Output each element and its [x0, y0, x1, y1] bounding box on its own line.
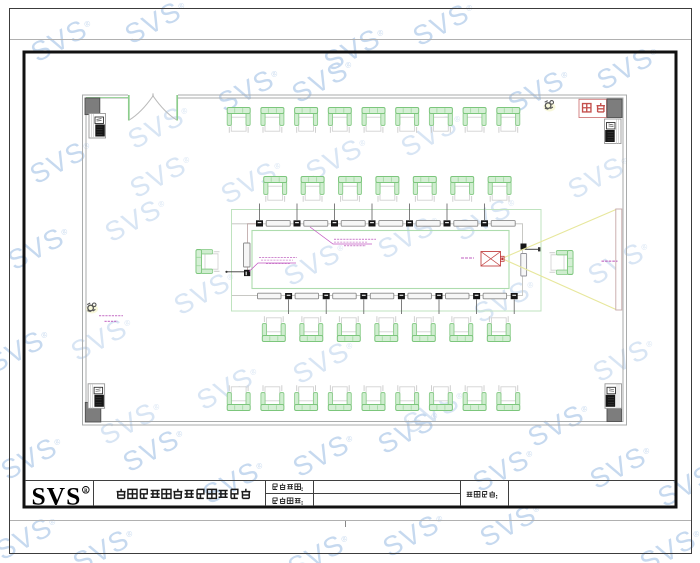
svg-text:R: R	[84, 489, 88, 494]
svg-text:SVS®: SVS®	[562, 146, 636, 205]
svg-text:SVS®: SVS®	[377, 504, 451, 563]
svg-text:SVS®: SVS®	[0, 320, 56, 379]
svg-text:SVS®: SVS®	[282, 524, 356, 563]
svg-text:SVS®: SVS®	[587, 329, 661, 388]
svg-text:SVS®: SVS®	[24, 131, 98, 190]
svg-text:SVS®: SVS®	[119, 0, 193, 50]
svg-text:SVS®: SVS®	[25, 9, 99, 68]
svg-text:SVS®: SVS®	[122, 96, 196, 155]
svg-text:SVS®: SVS®	[634, 519, 700, 563]
svg-text:SVS®: SVS®	[65, 308, 139, 367]
svg-text:SVS®: SVS®	[0, 427, 69, 486]
svg-text:SVS®: SVS®	[522, 394, 596, 453]
svg-text:SVS®: SVS®	[474, 494, 548, 553]
svg-text:SVS®: SVS®	[407, 0, 481, 52]
svg-text:SVS®: SVS®	[287, 424, 361, 483]
svg-text:SVS®: SVS®	[318, 18, 392, 77]
svg-text:SVS®: SVS®	[2, 217, 76, 276]
svg-text:SVS®: SVS®	[67, 519, 141, 563]
svg-text:SVS®: SVS®	[467, 439, 541, 498]
svg-text:SVS®: SVS®	[591, 37, 665, 96]
svg-text:SVS®: SVS®	[584, 436, 658, 495]
svg-text:SVS: SVS	[32, 482, 82, 511]
